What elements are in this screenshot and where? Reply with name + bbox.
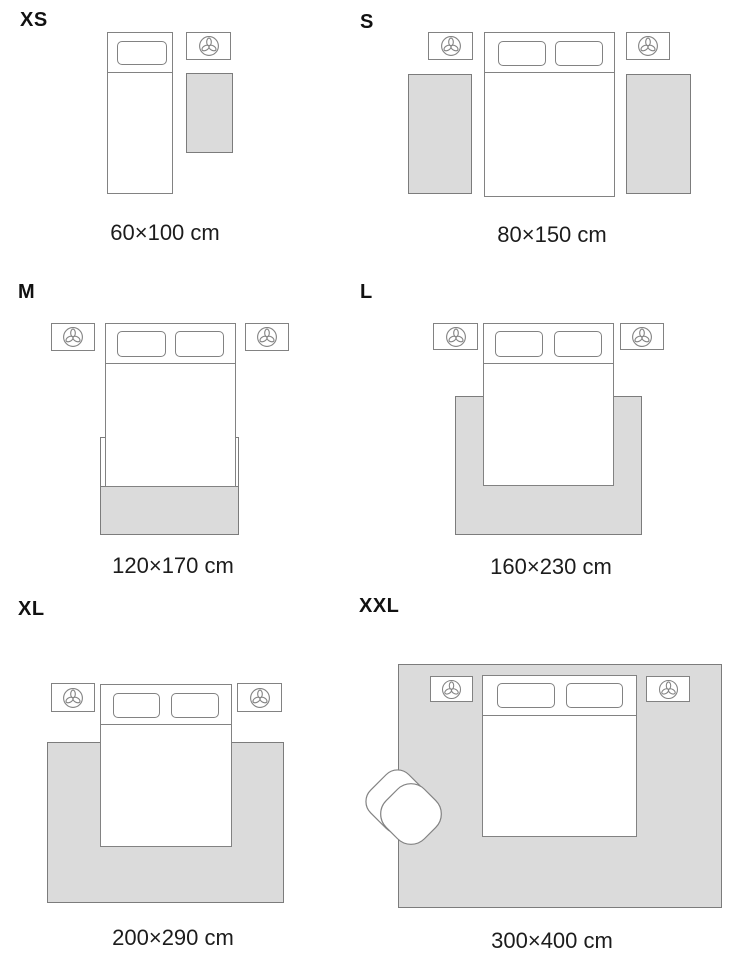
rug-s-left — [408, 74, 472, 194]
pillow — [498, 41, 546, 66]
pillow — [497, 683, 555, 708]
pillow — [171, 693, 219, 718]
rug-s-right — [626, 74, 691, 194]
nightstand — [433, 323, 478, 350]
bed — [107, 32, 173, 194]
plant-icon — [62, 687, 84, 709]
dimension-caption-xxl: 300×400 cm — [452, 928, 652, 954]
nightstand — [626, 32, 670, 60]
nightstand — [428, 32, 473, 60]
nightstand — [620, 323, 664, 350]
nightstand — [51, 683, 95, 712]
plant-icon — [256, 326, 278, 348]
rug-xs — [186, 73, 233, 153]
plant-icon — [440, 35, 462, 57]
bed — [484, 32, 615, 197]
plant-icon — [198, 35, 220, 57]
nightstand — [646, 676, 690, 702]
pillow — [566, 683, 623, 708]
plant-icon — [62, 326, 84, 348]
pillow — [555, 41, 603, 66]
pillow — [117, 331, 166, 357]
bed — [483, 323, 614, 486]
plant-icon — [637, 35, 659, 57]
rug-size-guide: XS 60×100 cm S — [0, 0, 740, 960]
armchair-icon — [358, 760, 450, 852]
size-label-xxl: XXL — [359, 595, 399, 618]
plant-icon — [249, 687, 271, 709]
pillow — [554, 331, 602, 357]
bed — [100, 684, 232, 847]
bed — [105, 323, 236, 487]
plant-icon — [631, 326, 653, 348]
nightstand — [186, 32, 231, 60]
pillow — [117, 41, 167, 65]
nightstand — [237, 683, 282, 712]
nightstand — [245, 323, 289, 351]
nightstand — [51, 323, 95, 351]
nightstand — [430, 676, 473, 702]
pillow — [175, 331, 224, 357]
pillow — [495, 331, 543, 357]
plant-icon — [658, 679, 679, 700]
plant-icon — [441, 679, 462, 700]
bed — [482, 675, 637, 837]
pillow — [113, 693, 160, 718]
rug-m-visible-part — [101, 486, 238, 534]
plant-icon — [445, 326, 467, 348]
